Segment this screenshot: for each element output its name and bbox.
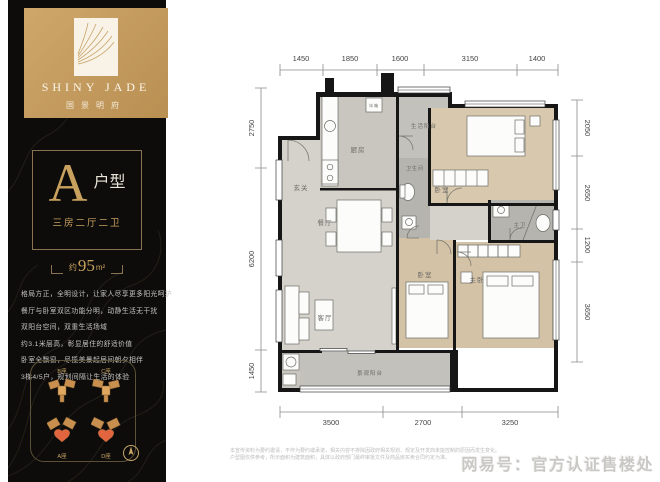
logo-chinese-name: 国景明府 — [24, 100, 168, 111]
unit-type-card: A 户型 三房二厅二卫 — [32, 150, 142, 250]
building-b: B座 — [47, 367, 77, 408]
building-icon — [47, 375, 77, 403]
flyer-page: SHINY JADE 国景明府 A 户型 三房二厅二卫 约 95 m² 格局方正… — [0, 0, 660, 482]
dim-top-2: 1850 — [342, 54, 359, 63]
floorplan: 玄关 厨房 生活阳台 卫生间 卧室 餐厅 客厅 卧室 主卧 主卫 景观阳台 冰箱 — [225, 40, 660, 445]
building-label: C座 — [91, 367, 121, 375]
dim-top-1: 1450 — [293, 54, 310, 63]
building-label: D座 — [91, 452, 121, 460]
dim-top-3: 1600 — [392, 54, 409, 63]
room-label-dining: 餐厅 — [318, 218, 333, 227]
desc-line: 餐厅与卧室双区功能分明，动静生活无干扰 — [21, 304, 167, 321]
dim-bottom-2: 2700 — [415, 418, 432, 427]
building-label: A座 — [47, 452, 77, 460]
area-prefix: 约 — [69, 262, 77, 274]
building-a: A座 — [47, 417, 77, 460]
building-icon — [91, 375, 121, 403]
room-label-living: 客厅 — [318, 313, 333, 322]
building-icon — [91, 417, 121, 447]
dim-top-5: 1400 — [529, 54, 546, 63]
room-label-master-bedroom: 主卧 — [470, 275, 485, 284]
desc-line: 约3.1米层高，彰显居住的舒适价值 — [21, 337, 167, 354]
compass-icon — [122, 444, 140, 462]
room-label-view-balcony: 景观阳台 — [357, 369, 383, 377]
dim-right-1: 2050 — [583, 120, 592, 137]
bracket-right-icon — [111, 265, 123, 274]
room-label-master-bath: 主卫 — [513, 221, 526, 229]
dim-top-4: 3150 — [462, 54, 479, 63]
room-label-entry: 玄关 — [294, 183, 309, 192]
unit-spec: 三房二厅二卫 — [52, 215, 121, 229]
desc-line: 双阳台空间，双重生活场域 — [21, 320, 167, 337]
dim-right-3: 1200 — [583, 237, 592, 254]
area-unit: m² — [96, 262, 105, 274]
room-label-service-balcony: 生活阳台 — [411, 122, 437, 130]
unit-letter: A — [48, 155, 87, 211]
floorplan-area: 玄关 厨房 生活阳台 卫生间 卧室 餐厅 客厅 卧室 主卧 主卫 景观阳台 冰箱 — [225, 40, 660, 450]
building-d: D座 — [91, 417, 121, 460]
area-number: 95 — [78, 258, 95, 274]
room-label-kitchen: 厨房 — [351, 145, 366, 154]
watermark: 网易号：官方认证售楼处 — [461, 451, 654, 475]
room-label-bedroom-a: 卧室 — [435, 185, 450, 194]
room-label-fridge: 冰箱 — [369, 102, 379, 108]
room-label-bedroom-b: 卧室 — [418, 270, 433, 279]
building-c: C座 — [91, 367, 121, 408]
dim-left-2: 6200 — [247, 251, 256, 268]
dim-right-2: 2650 — [583, 185, 592, 202]
room-label-guest-bath: 卫生间 — [406, 165, 424, 172]
unit-area: 约 95 m² — [32, 258, 142, 274]
dim-bottom-1: 3500 — [323, 418, 340, 427]
brand-logo: SHINY JADE 国景明府 — [24, 8, 168, 118]
dim-left-3: 1450 — [247, 363, 256, 380]
dim-left-1: 2750 — [247, 120, 256, 137]
unit-type-label: 户型 — [93, 174, 125, 192]
site-map: B座 C座 — [30, 360, 136, 462]
dim-right-4: 3650 — [583, 304, 592, 321]
building-label: B座 — [47, 367, 77, 375]
dim-bottom-3: 3250 — [502, 418, 519, 427]
building-icon — [47, 417, 77, 447]
desc-line: 格局方正，全明设计，让家人尽享更多阳光呵护 — [21, 287, 167, 304]
logo-english-name: SHINY JADE — [24, 80, 168, 95]
logo-fan-icon — [74, 18, 118, 76]
left-panel: SHINY JADE 国景明府 A 户型 三房二厅二卫 约 95 m² 格局方正… — [8, 0, 166, 482]
bracket-left-icon — [51, 265, 63, 274]
